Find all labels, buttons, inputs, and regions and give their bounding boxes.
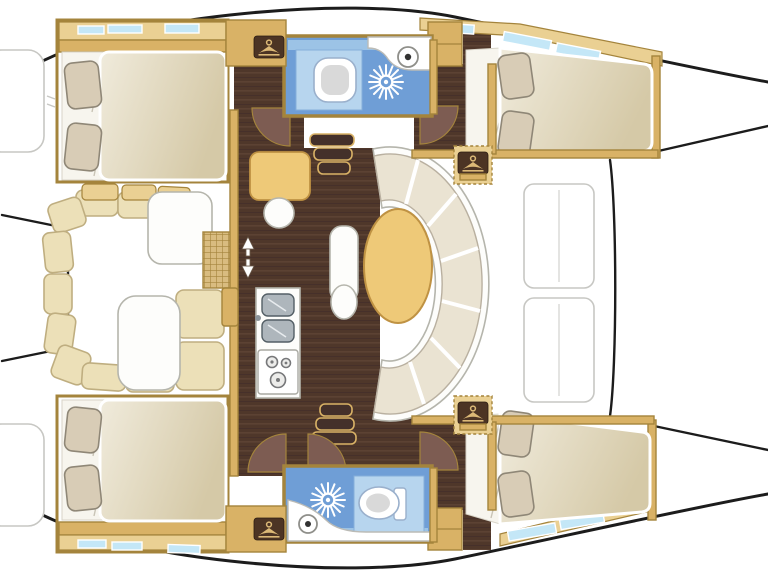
hanging-locker-icon: [254, 36, 284, 58]
saloon-oval-table: [364, 209, 432, 323]
starboard-transom-step: [0, 424, 44, 526]
galley-faucet: [255, 315, 261, 321]
hull-window: [108, 25, 142, 33]
washbasin-drain: [305, 521, 311, 527]
cabin-entry-wall: [488, 422, 496, 510]
hanging-locker-icon: [458, 152, 488, 174]
pillow: [64, 464, 102, 511]
cabin-starboard-aft: [57, 396, 228, 554]
hull-window: [78, 540, 106, 548]
hanging-locker-icon: [458, 402, 488, 424]
catamaran-floor-plan: [0, 0, 768, 576]
locker-shelf: [460, 424, 486, 430]
washbasin-drain: [405, 54, 411, 60]
shower-icon: [369, 65, 403, 99]
head-fwd-wall: [430, 468, 437, 542]
hanging-locker-icon: [254, 518, 284, 540]
cabin-port-aft: [57, 20, 228, 182]
double-berth: [100, 52, 226, 180]
galley: [255, 288, 300, 398]
pillow: [64, 122, 103, 171]
hull-window: [112, 542, 142, 550]
toilet-bowl: [366, 494, 390, 513]
toilet-bowl: [321, 65, 349, 95]
cockpit-table-fwd: [118, 296, 180, 390]
cabin-aft-wall: [412, 150, 658, 158]
saloon-bench-seat-end: [331, 285, 357, 319]
cabin-fwd-wall: [412, 416, 654, 424]
bridgedeck-front-edge: [610, 160, 615, 416]
hull-side-shelf-edge: [59, 522, 226, 535]
head-port: [284, 36, 437, 116]
hull-window: [165, 24, 199, 33]
cockpit-door: [222, 288, 238, 326]
hull-window: [78, 26, 104, 34]
port-transom-step: [0, 50, 44, 152]
head-starboard: [284, 466, 437, 542]
hull-side-shelf-edge: [59, 40, 226, 52]
stern-ladder-marks: [47, 96, 55, 107]
floor-plan-canvas: [0, 0, 768, 576]
stool: [264, 198, 294, 228]
pillow: [497, 52, 535, 100]
pillow: [64, 60, 103, 109]
starboard-hull-inner-edge: [654, 426, 768, 450]
pillow: [497, 470, 535, 518]
head-fwd-wall: [430, 40, 437, 114]
hull-window: [168, 544, 200, 553]
pillow: [64, 406, 102, 453]
cabin-entry-wall: [488, 64, 496, 154]
side-table: [250, 152, 310, 200]
locker-shelf: [460, 174, 486, 180]
cockpit: [42, 184, 234, 392]
double-berth: [100, 400, 226, 521]
port-hull-inner-edge: [654, 126, 768, 152]
